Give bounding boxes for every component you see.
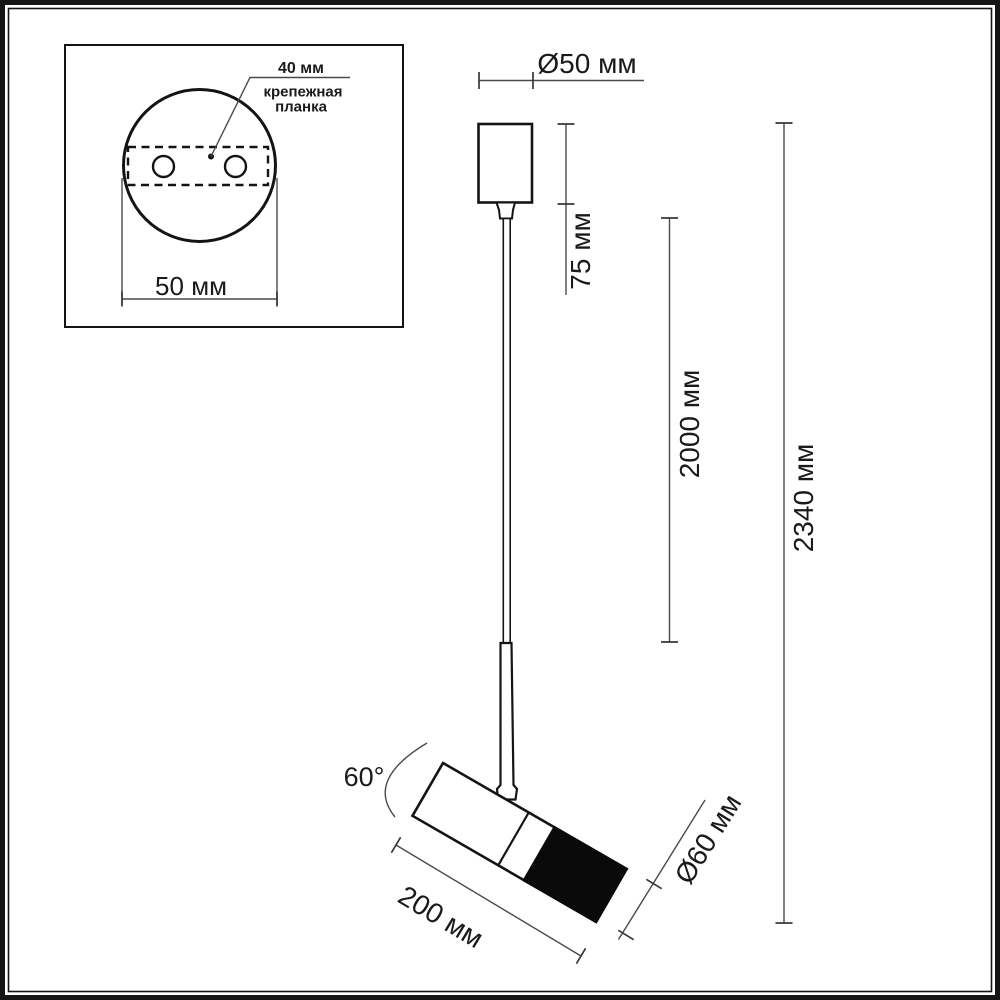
suspension-cable — [503, 219, 510, 644]
inset-top-view: 40 мм крепежная планка 50 мм — [65, 45, 403, 327]
inset-box — [65, 45, 403, 327]
canopy-diameter-label: Ø50 мм — [537, 48, 636, 79]
hole-spacing-label: 40 мм — [278, 60, 324, 77]
mounting-plate-label-line2: планка — [275, 99, 327, 116]
dimension-drawing: 40 мм крепежная планка 50 мм Ø50 мм 60° … — [0, 0, 1000, 1000]
drawing-sheet: 40 мм крепежная планка 50 мм Ø50 мм 60° … — [0, 0, 1000, 1000]
base-diameter-label: 50 мм — [155, 271, 227, 301]
tilt-angle-label: 60° — [344, 762, 385, 792]
canopy-height-label: 75 мм — [565, 212, 596, 289]
cable-length-label: 2000 мм — [674, 370, 705, 479]
canopy-neck — [497, 203, 516, 219]
ceiling-canopy — [479, 124, 533, 203]
overall-height-label: 2340 мм — [788, 444, 819, 553]
